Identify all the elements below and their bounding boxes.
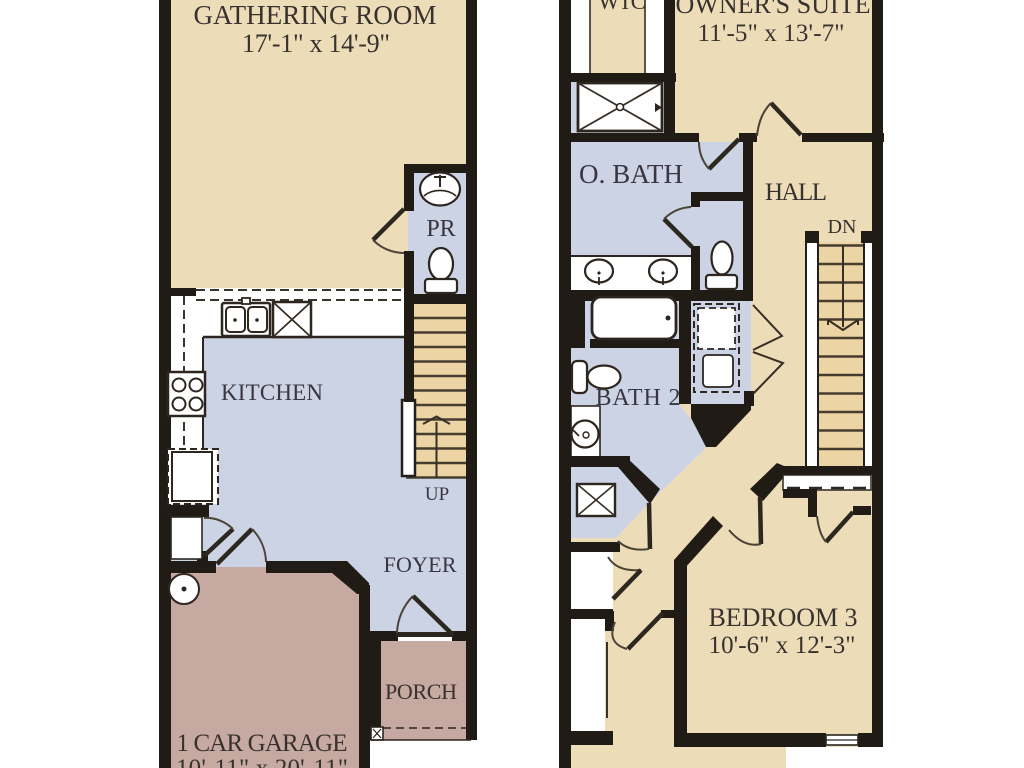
svg-text:BATH 2: BATH 2 <box>596 385 681 411</box>
svg-text:WIC: WIC <box>598 0 646 14</box>
svg-text:PORCH: PORCH <box>385 679 457 704</box>
svg-text:11'-5" x 13'-7": 11'-5" x 13'-7" <box>698 20 845 47</box>
svg-text:10'-6" x 12'-3": 10'-6" x 12'-3" <box>709 632 856 659</box>
svg-text:KITCHEN: KITCHEN <box>221 380 323 405</box>
svg-text:10'-11" x 20'-11": 10'-11" x 20'-11" <box>176 755 348 768</box>
svg-text:HALL: HALL <box>765 179 827 206</box>
svg-text:DN: DN <box>828 216 857 238</box>
svg-text:O. BATH: O. BATH <box>579 159 683 189</box>
svg-text:17'-1" x 14'-9": 17'-1" x 14'-9" <box>242 29 390 58</box>
svg-text:UP: UP <box>425 484 449 505</box>
svg-text:GATHERING ROOM: GATHERING ROOM <box>194 0 437 30</box>
svg-text:PR: PR <box>426 216 455 242</box>
svg-text:OWNER'S SUITE: OWNER'S SUITE <box>676 0 871 19</box>
svg-text:1 CAR GARAGE: 1 CAR GARAGE <box>177 730 348 757</box>
svg-text:BEDROOM 3: BEDROOM 3 <box>709 603 858 632</box>
svg-text:FOYER: FOYER <box>384 552 457 577</box>
